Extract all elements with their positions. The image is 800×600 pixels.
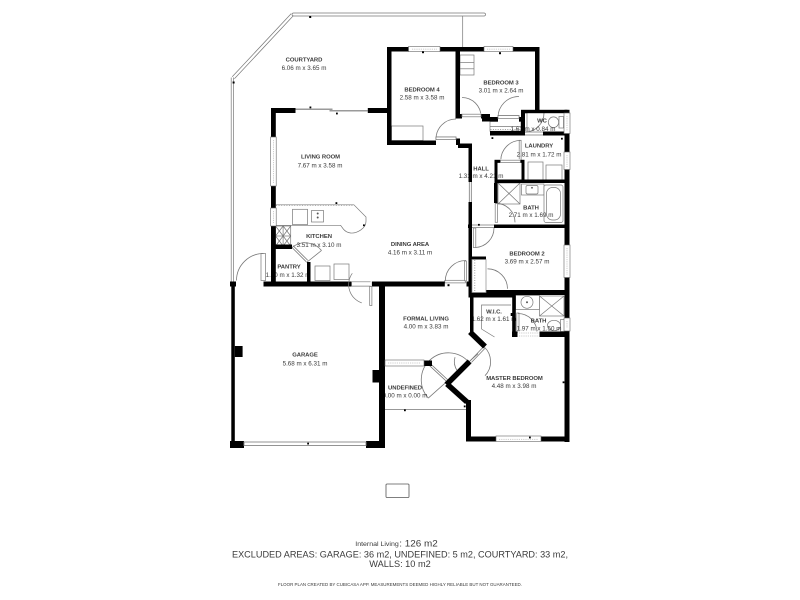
svg-text:KITCHEN: KITCHEN — [306, 234, 332, 240]
svg-text:4.48 m x 3.98 m: 4.48 m x 3.98 m — [492, 383, 537, 390]
svg-text:LAUNDRY: LAUNDRY — [525, 143, 553, 149]
svg-text:HALL: HALL — [473, 166, 489, 172]
svg-text:BEDROOM 4: BEDROOM 4 — [404, 87, 440, 93]
svg-text:WC: WC — [537, 119, 548, 125]
svg-text:4.00 m x 3.83 m: 4.00 m x 3.83 m — [404, 323, 449, 330]
svg-text:: 126 m2: : 126 m2 — [399, 539, 438, 549]
svg-text:LIVING ROOM: LIVING ROOM — [301, 154, 340, 160]
svg-text:2.81 m x 1.72 m: 2.81 m x 1.72 m — [517, 151, 562, 158]
svg-text:BEDROOM 3: BEDROOM 3 — [483, 80, 519, 86]
svg-text:PANTRY: PANTRY — [277, 264, 300, 270]
svg-text:GARAGE: GARAGE — [292, 352, 318, 358]
svg-text:UNDEFINED: UNDEFINED — [388, 385, 422, 391]
svg-text:5.68 m x 6.31 m: 5.68 m x 6.31 m — [283, 360, 328, 367]
svg-text:2.58 m x 3.58 m: 2.58 m x 3.58 m — [400, 94, 445, 101]
svg-text:BATH: BATH — [523, 205, 539, 211]
svg-text:2.71 m x 1.69 m: 2.71 m x 1.69 m — [509, 212, 554, 219]
svg-text:4.16 m x 3.11 m: 4.16 m x 3.11 m — [388, 250, 432, 257]
svg-text:W.I.C.: W.I.C. — [486, 309, 502, 315]
svg-text:WALLS: 10 m2: WALLS: 10 m2 — [369, 559, 431, 569]
svg-text:6.06 m x 3.65 m: 6.06 m x 3.65 m — [282, 65, 327, 72]
svg-text:FLOOR PLAN CREATED BY CUBICASA: FLOOR PLAN CREATED BY CUBICASA APP. MEAS… — [278, 582, 522, 588]
svg-text:3.01 m x 2.64 m: 3.01 m x 2.64 m — [479, 87, 524, 94]
svg-text:BATH: BATH — [531, 318, 547, 324]
svg-text:EXCLUDED AREAS: GARAGE: 36 m2,: EXCLUDED AREAS: GARAGE: 36 m2, UNDEFINED… — [232, 550, 568, 560]
svg-text:7.67 m x 3.58 m: 7.67 m x 3.58 m — [298, 162, 343, 169]
svg-text:3.51 m x 3.10 m: 3.51 m x 3.10 m — [297, 242, 342, 249]
svg-text:1.97 m x 1.50 m: 1.97 m x 1.50 m — [517, 325, 562, 332]
svg-text:MASTER BEDROOM: MASTER BEDROOM — [486, 376, 543, 382]
svg-text:3.69 m x 2.57 m: 3.69 m x 2.57 m — [505, 258, 550, 265]
svg-text:0.00 m x 0.00 m: 0.00 m x 0.00 m — [383, 392, 428, 399]
svg-text:FORMAL LIVING: FORMAL LIVING — [403, 316, 449, 322]
svg-text:COURTYARD: COURTYARD — [286, 58, 323, 64]
svg-text:1.62 m x 1.61 m: 1.62 m x 1.61 m — [472, 316, 517, 323]
svg-text:Internal Living: Internal Living — [355, 541, 399, 548]
svg-text:DINING AREA: DINING AREA — [391, 242, 430, 248]
svg-text:BEDROOM 2: BEDROOM 2 — [509, 251, 545, 257]
